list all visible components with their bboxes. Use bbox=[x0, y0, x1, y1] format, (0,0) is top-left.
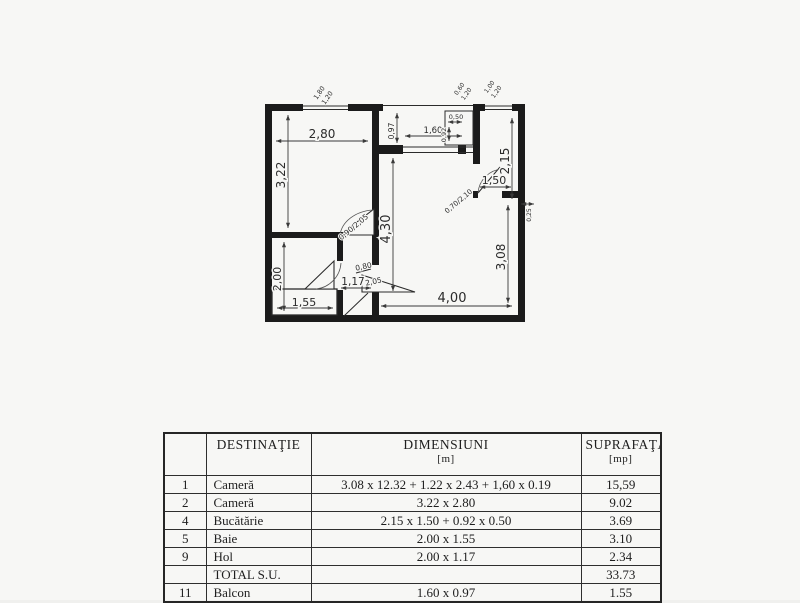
row-no: 11 bbox=[164, 584, 206, 603]
dimension-labels: 2,80 3,22 2,00 1,55 1,17 0,80 2,05 0,90/… bbox=[271, 80, 533, 309]
row-destination: Balcon bbox=[206, 584, 311, 603]
dim-kitchen-height: 2,15 bbox=[498, 148, 512, 175]
door-leaf-entrance bbox=[344, 293, 368, 316]
dim-hall-length: 4,30 bbox=[379, 215, 394, 244]
row-no: 5 bbox=[164, 530, 206, 548]
row-destination: Bucătărie bbox=[206, 512, 311, 530]
scanned-document-page: 2,80 3,22 2,00 1,55 1,17 0,80 2,05 0,90/… bbox=[0, 0, 800, 600]
dim-bath-height: 2,00 bbox=[271, 267, 284, 292]
dim-room1-height: 3,08 bbox=[494, 244, 508, 271]
row-destination: Baie bbox=[206, 530, 311, 548]
header-area-unit: [mp] bbox=[586, 453, 657, 465]
header-dimensions-label: DIMENSIUNI bbox=[316, 437, 577, 453]
dim-room2-width: 2,80 bbox=[309, 127, 336, 141]
row-dimensions: 3.08 x 12.32 + 1.22 x 2.43 + 1,60 x 0.19 bbox=[311, 476, 581, 494]
row-destination: TOTAL S.U. bbox=[206, 566, 311, 584]
header-area: SUPRAFAŢA [mp] bbox=[581, 433, 661, 476]
row-no: 9 bbox=[164, 548, 206, 566]
row-area: 9.02 bbox=[581, 494, 661, 512]
dim-hall-width: 1,17 bbox=[341, 276, 364, 288]
row-destination: Cameră bbox=[206, 494, 311, 512]
row-destination: Hol bbox=[206, 548, 311, 566]
table-row: 9 Hol 2.00 x 1.17 2.34 bbox=[164, 548, 661, 566]
dim-kitchen-width: 1,50 bbox=[482, 174, 507, 187]
dim-nook-height: 0,92 bbox=[440, 128, 448, 142]
row-no: 2 bbox=[164, 494, 206, 512]
row-dimensions: 2.00 x 1.55 bbox=[311, 530, 581, 548]
doors bbox=[305, 167, 502, 316]
area-table-wrap: DESTINAŢIE DIMENSIUNI [m] SUPRAFAŢA [mp]… bbox=[163, 432, 662, 603]
table-row: 11 Balcon 1.60 x 0.97 1.55 bbox=[164, 584, 661, 603]
row-destination: Cameră bbox=[206, 476, 311, 494]
table-row: 1 Cameră 3.08 x 12.32 + 1.22 x 2.43 + 1,… bbox=[164, 476, 661, 494]
dim-room2-height: 3,22 bbox=[274, 162, 288, 189]
dim-hall-door-width: 0,80 bbox=[354, 260, 372, 272]
table-header-row: DESTINAŢIE DIMENSIUNI [m] SUPRAFAŢA [mp] bbox=[164, 433, 661, 476]
row-dimensions bbox=[311, 566, 581, 584]
row-area: 15,59 bbox=[581, 476, 661, 494]
row-area: 33.73 bbox=[581, 566, 661, 584]
dim-kitchen-door: 0,70/2,10 bbox=[443, 188, 474, 216]
header-dimensions-unit: [m] bbox=[316, 453, 577, 465]
floor-plan: 2,80 3,22 2,00 1,55 1,17 0,80 2,05 0,90/… bbox=[240, 55, 550, 335]
row-area: 2.34 bbox=[581, 548, 661, 566]
row-dimensions: 3.22 x 2.80 bbox=[311, 494, 581, 512]
dim-bath-width: 1,55 bbox=[292, 296, 317, 309]
header-destination: DESTINAŢIE bbox=[206, 433, 311, 476]
row-dimensions: 2.00 x 1.17 bbox=[311, 548, 581, 566]
door-swing-bath bbox=[305, 261, 334, 289]
dim-nook-width: 0,50 bbox=[449, 113, 463, 121]
row-area: 1.55 bbox=[581, 584, 661, 603]
row-no bbox=[164, 566, 206, 584]
header-dimensions: DIMENSIUNI [m] bbox=[311, 433, 581, 476]
row-area: 3.69 bbox=[581, 512, 661, 530]
row-no: 4 bbox=[164, 512, 206, 530]
table-row: 2 Cameră 3.22 x 2.80 9.02 bbox=[164, 494, 661, 512]
header-no bbox=[164, 433, 206, 476]
header-area-label: SUPRAFAŢA bbox=[586, 437, 657, 453]
row-no: 1 bbox=[164, 476, 206, 494]
table-row-total: TOTAL S.U. 33.73 bbox=[164, 566, 661, 584]
row-dimensions: 1.60 x 0.97 bbox=[311, 584, 581, 603]
dim-balcony-depth: 0,97 bbox=[387, 122, 396, 139]
row-area: 3.10 bbox=[581, 530, 661, 548]
dim-wall-mark: 0,25 bbox=[526, 208, 533, 222]
dim-room1-width: 4,00 bbox=[438, 291, 467, 306]
area-table: DESTINAŢIE DIMENSIUNI [m] SUPRAFAŢA [mp]… bbox=[163, 432, 662, 603]
table-row: 4 Bucătărie 2.15 x 1.50 + 0.92 x 0.50 3.… bbox=[164, 512, 661, 530]
row-dimensions: 2.15 x 1.50 + 0.92 x 0.50 bbox=[311, 512, 581, 530]
table-row: 5 Baie 2.00 x 1.55 3.10 bbox=[164, 530, 661, 548]
